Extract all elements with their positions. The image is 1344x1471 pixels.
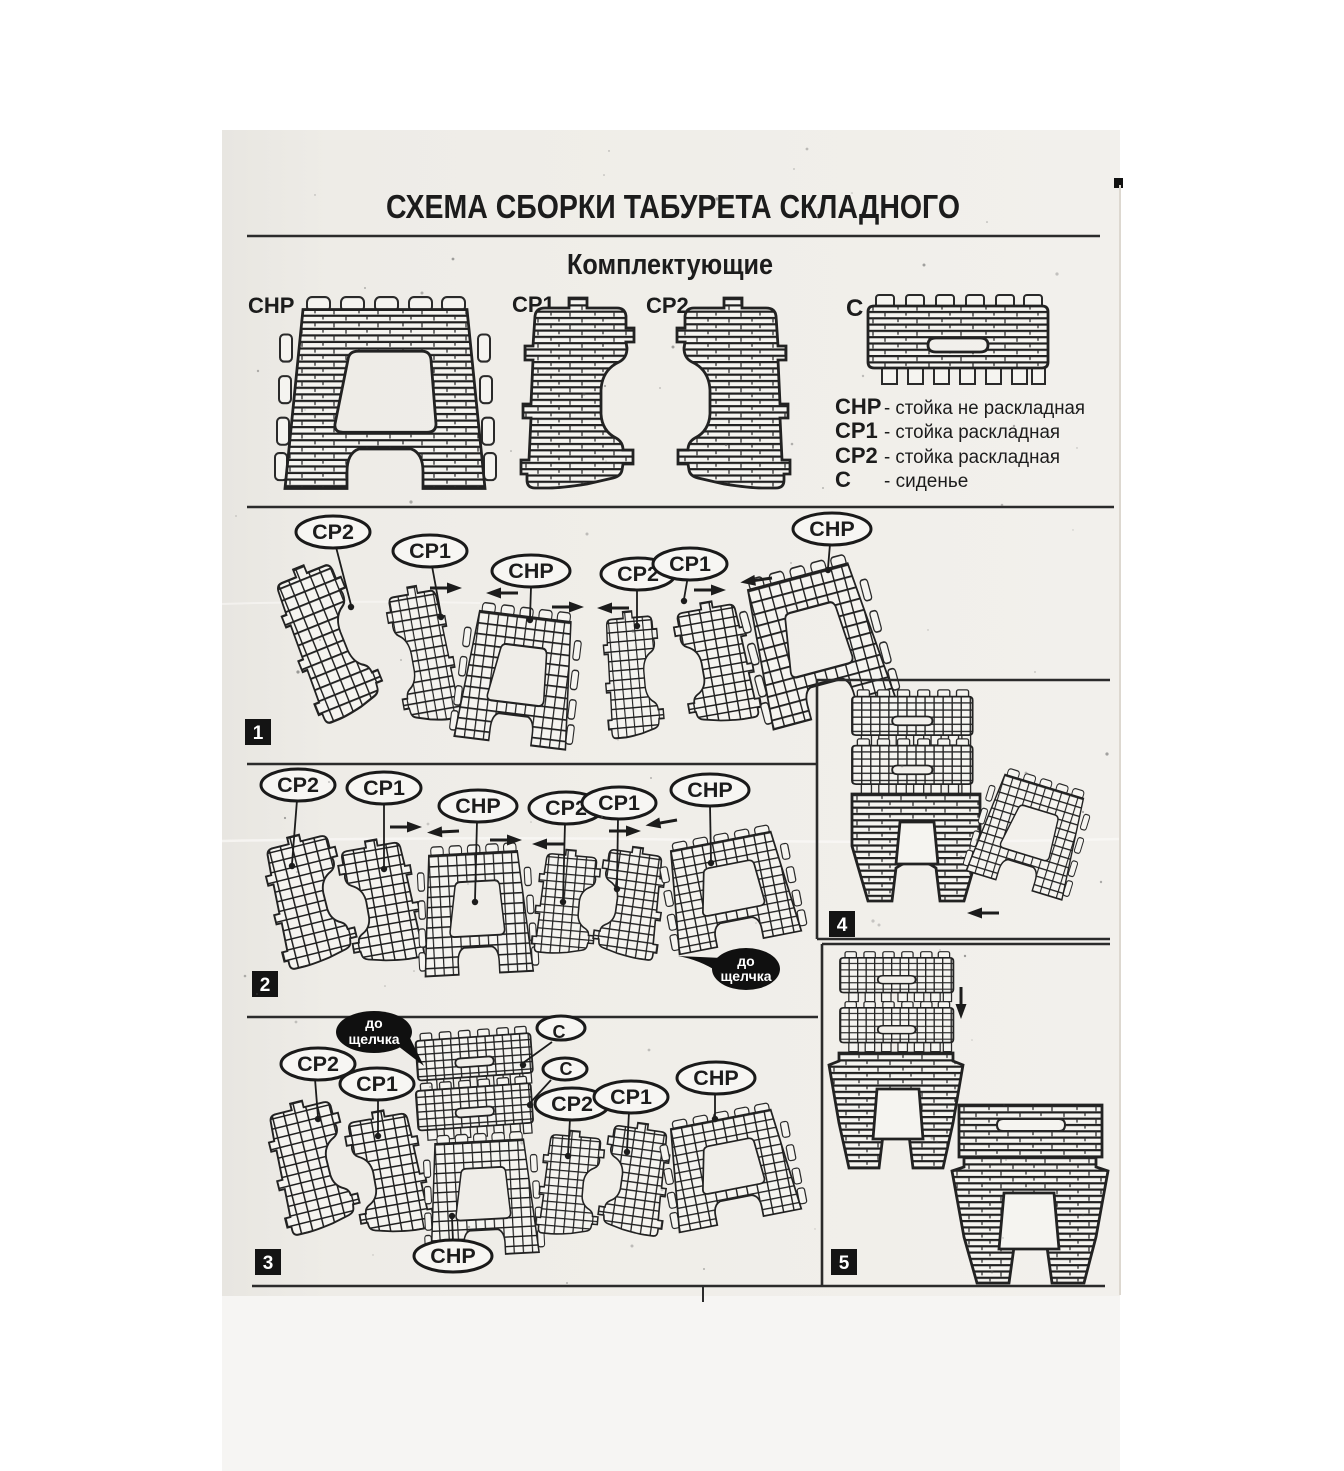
svg-text:1: 1 — [253, 723, 264, 744]
svg-text:CHP: CHP — [809, 517, 854, 541]
svg-text:- стойка раскладная: - стойка раскладная — [884, 422, 1060, 443]
svg-text:щелчка: щелчка — [720, 968, 771, 984]
svg-text:CP2: CP2 — [297, 1052, 339, 1076]
svg-text:CHP: CHP — [687, 778, 732, 802]
svg-text:до: до — [365, 1015, 382, 1031]
svg-text:CP2: CP2 — [277, 773, 319, 797]
svg-text:CP2: CP2 — [545, 796, 587, 820]
svg-text:CP1: CP1 — [598, 791, 640, 815]
svg-text:CP1: CP1 — [669, 552, 711, 576]
svg-text:CP1: CP1 — [363, 776, 405, 800]
svg-text:CHP: CHP — [455, 794, 500, 818]
svg-text:CHP: CHP — [693, 1066, 738, 1090]
svg-text:5: 5 — [839, 1253, 850, 1274]
svg-text:CP2: CP2 — [835, 443, 878, 468]
svg-text:CP1: CP1 — [835, 418, 878, 443]
svg-text:C: C — [846, 295, 863, 322]
svg-text:3: 3 — [263, 1253, 274, 1274]
svg-text:CP2: CP2 — [646, 293, 689, 318]
svg-text:CHP: CHP — [835, 394, 881, 419]
svg-text:C: C — [553, 1022, 566, 1042]
svg-text:CHP: CHP — [248, 293, 294, 318]
svg-text:CP1: CP1 — [409, 539, 451, 563]
svg-text:2: 2 — [260, 975, 271, 996]
svg-text:Комплектующие: Комплектующие — [567, 249, 773, 281]
svg-text:CP1: CP1 — [356, 1072, 398, 1096]
svg-text:- сиденье: - сиденье — [884, 471, 968, 492]
svg-text:CP2: CP2 — [312, 520, 354, 544]
svg-text:CP2: CP2 — [551, 1092, 593, 1116]
svg-text:CHP: CHP — [430, 1244, 475, 1268]
svg-text:CHP: CHP — [508, 559, 553, 583]
svg-text:щелчка: щелчка — [348, 1031, 399, 1047]
svg-text:C: C — [835, 467, 851, 492]
svg-text:4: 4 — [837, 915, 848, 936]
svg-text:- стойка не раскладная: - стойка не раскладная — [884, 398, 1085, 419]
svg-text:C: C — [560, 1059, 573, 1079]
svg-text:СХЕМА СБОРКИ ТАБУРЕТА СКЛАДНОГ: СХЕМА СБОРКИ ТАБУРЕТА СКЛАДНОГО — [386, 188, 960, 225]
svg-text:- стойка раскладная: - стойка раскладная — [884, 447, 1060, 468]
svg-text:до: до — [737, 953, 754, 969]
svg-text:CP1: CP1 — [610, 1085, 652, 1109]
